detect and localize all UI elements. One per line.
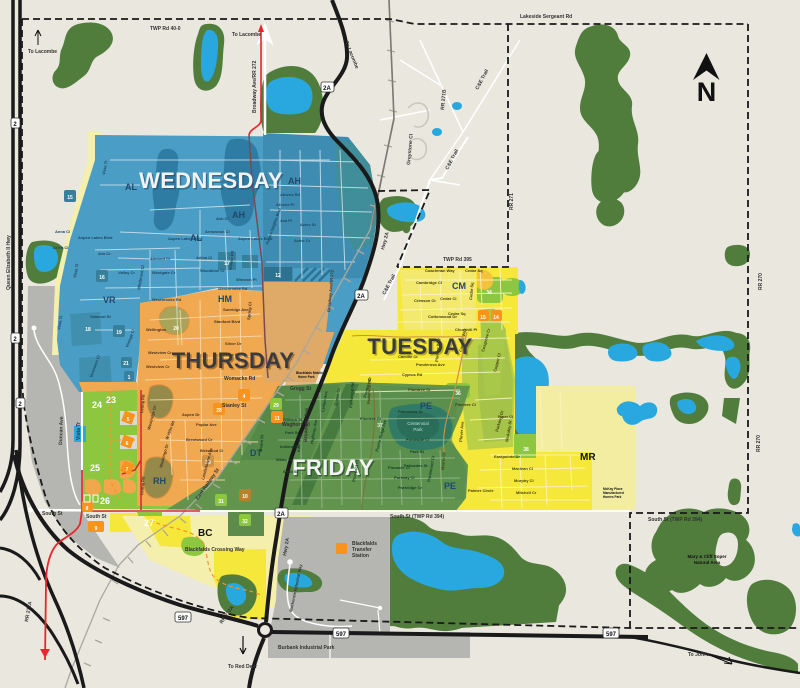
svg-text:Portway Cl: Portway Cl <box>394 475 415 480</box>
svg-text:Burbank Industrial Park: Burbank Industrial Park <box>278 645 335 651</box>
svg-text:Westview Cr: Westview Cr <box>146 364 170 369</box>
svg-text:20: 20 <box>173 326 179 332</box>
svg-text:Sunridge Ave: Sunridge Ave <box>223 307 249 312</box>
svg-text:7: 7 <box>126 467 129 473</box>
svg-text:South St: South St <box>86 514 107 520</box>
svg-text:N: N <box>697 77 717 107</box>
svg-text:Pinetree Cl: Pinetree Cl <box>360 416 381 421</box>
svg-text:Lakeside Sergeant Rd: Lakeside Sergeant Rd <box>520 14 572 20</box>
svg-text:RR 270: RR 270 <box>756 435 762 452</box>
svg-text:Athens Rd: Athens Rd <box>280 192 301 197</box>
svg-text:RR 271: RR 271 <box>509 193 515 210</box>
svg-text:Parkwood Rd: Parkwood Rd <box>366 378 372 404</box>
svg-text:2A: 2A <box>277 512 285 518</box>
svg-text:23: 23 <box>106 395 116 405</box>
svg-text:Pondside Cr: Pondside Cr <box>406 437 430 442</box>
svg-text:Ava Cr: Ava Cr <box>98 251 111 256</box>
svg-text:Westbrooke Rd: Westbrooke Rd <box>152 297 182 302</box>
svg-text:Westgate Cr: Westgate Cr <box>152 270 176 275</box>
svg-text:PE: PE <box>444 481 456 491</box>
svg-text:Ash Cl: Ash Cl <box>216 216 229 221</box>
svg-text:11: 11 <box>274 416 280 422</box>
svg-text:CM: CM <box>452 281 466 291</box>
svg-text:8: 8 <box>86 506 89 512</box>
svg-text:Shull St: Shull St <box>283 469 299 474</box>
svg-text:HM: HM <box>218 294 232 304</box>
svg-text:14: 14 <box>493 315 499 321</box>
svg-text:WEDNESDAY: WEDNESDAY <box>139 168 283 193</box>
svg-text:AH: AH <box>232 210 245 220</box>
svg-text:12: 12 <box>275 273 281 279</box>
svg-text:Ponderosa Ave: Ponderosa Ave <box>416 362 446 367</box>
svg-text:Cyprus Rd: Cyprus Rd <box>402 372 423 377</box>
svg-text:29: 29 <box>273 403 279 409</box>
svg-text:Woodbine Cl: Woodbine Cl <box>200 268 224 273</box>
svg-text:Poplar Ave: Poplar Ave <box>196 422 217 427</box>
svg-text:25: 25 <box>90 463 100 473</box>
svg-text:4: 4 <box>243 394 246 400</box>
svg-text:Valley Cr: Valley Cr <box>118 270 135 275</box>
svg-text:MR: MR <box>580 452 596 463</box>
svg-text:15: 15 <box>67 195 73 201</box>
svg-text:BC: BC <box>198 528 212 539</box>
svg-text:18: 18 <box>85 327 91 333</box>
svg-text:Stanley St: Stanley St <box>222 403 247 409</box>
svg-text:Eastpointe Dr: Eastpointe Dr <box>494 454 520 459</box>
svg-text:Natural Area: Natural Area <box>694 560 721 565</box>
svg-text:South St: South St <box>42 511 63 517</box>
svg-text:Willson St: Willson St <box>283 417 303 422</box>
svg-text:Pinnacle Cl: Pinnacle Cl <box>388 465 410 470</box>
svg-text:Aspen Dr: Aspen Dr <box>182 412 200 417</box>
svg-text:Camille Ct: Camille Ct <box>398 354 418 359</box>
svg-text:15: 15 <box>480 315 486 321</box>
svg-text:Aztec St: Aztec St <box>300 222 316 227</box>
svg-text:21: 21 <box>123 361 129 367</box>
svg-text:32: 32 <box>242 519 248 525</box>
svg-text:6: 6 <box>126 441 129 447</box>
svg-text:5: 5 <box>127 417 130 423</box>
svg-text:Panorama Dr: Panorama Dr <box>398 409 423 414</box>
svg-text:Duncan Ave: Duncan Ave <box>58 416 65 445</box>
svg-text:Stanford Blvd: Stanford Blvd <box>214 319 241 324</box>
svg-text:Winto St: Winto St <box>276 457 293 462</box>
svg-text:10: 10 <box>242 494 248 500</box>
svg-text:9: 9 <box>95 526 98 532</box>
svg-text:34: 34 <box>486 290 492 296</box>
svg-text:To Red Deer: To Red Deer <box>228 664 257 670</box>
svg-text:TUESDAY: TUESDAY <box>367 334 472 359</box>
svg-text:Coachman Way: Coachman Way <box>425 268 455 273</box>
svg-text:16: 16 <box>99 275 105 281</box>
svg-text:Aspen Lakes Blvd: Aspen Lakes Blvd <box>168 236 203 241</box>
svg-text:Park St: Park St <box>410 449 424 454</box>
svg-text:Station: Station <box>352 553 369 559</box>
svg-text:2A: 2A <box>323 86 331 92</box>
svg-text:31: 31 <box>218 499 224 505</box>
svg-text:Waghorn St: Waghorn St <box>282 422 310 428</box>
svg-text:To Joffre: To Joffre <box>688 652 709 658</box>
svg-text:27: 27 <box>144 518 154 528</box>
svg-text:36: 36 <box>455 391 461 397</box>
svg-text:Athens Pl: Athens Pl <box>276 202 294 207</box>
svg-text:Centennial: Centennial <box>407 421 429 426</box>
svg-text:Silver Dr: Silver Dr <box>225 341 242 346</box>
svg-text:South St (TWP Rd 394): South St (TWP Rd 394) <box>390 514 444 520</box>
svg-text:RR 270: RR 270 <box>758 273 764 290</box>
svg-text:26: 26 <box>100 496 110 506</box>
svg-text:Palmer Circle: Palmer Circle <box>468 488 494 493</box>
svg-text:Broadway Ave/RR 272: Broadway Ave/RR 272 <box>252 60 258 113</box>
svg-text:38: 38 <box>523 447 529 453</box>
svg-text:TWP Rd 395: TWP Rd 395 <box>443 257 472 263</box>
svg-text:Ava Pl: Ava Pl <box>280 218 292 223</box>
svg-text:Gregg St: Gregg St <box>290 386 311 392</box>
svg-text:Almond Cr: Almond Cr <box>150 256 171 261</box>
svg-text:Arnswood Cl: Arnswood Cl <box>205 229 230 234</box>
svg-text:1: 1 <box>128 375 131 381</box>
svg-text:Sunrise Cl: Sunrise Cl <box>219 352 239 357</box>
svg-text:Aztec Cr: Aztec Cr <box>294 238 311 243</box>
svg-text:597: 597 <box>178 616 189 622</box>
svg-text:Westview Cr: Westview Cr <box>148 350 172 355</box>
svg-text:Pinetree Cl: Pinetree Cl <box>455 402 476 407</box>
svg-text:Brentwood Cr: Brentwood Cr <box>186 437 213 442</box>
svg-text:Womacks Rd: Womacks Rd <box>224 376 255 382</box>
svg-text:Parkridge Cr: Parkridge Cr <box>398 485 422 490</box>
svg-text:597: 597 <box>606 632 617 638</box>
svg-text:Queen Elizabeth II Hwy: Queen Elizabeth II Hwy <box>6 235 12 290</box>
svg-text:Park St: Park St <box>285 430 299 435</box>
svg-text:VR: VR <box>103 295 116 305</box>
svg-text:Winston Pl: Winston Pl <box>236 277 257 282</box>
svg-text:AH: AH <box>288 176 301 186</box>
svg-text:Maclean Cl: Maclean Cl <box>512 466 533 471</box>
svg-text:RH: RH <box>153 476 166 486</box>
svg-text:Home Park: Home Park <box>298 375 315 379</box>
svg-text:To Lacombe: To Lacombe <box>232 32 261 38</box>
svg-text:Blackfalds Crossing Way: Blackfalds Crossing Way <box>185 547 245 553</box>
svg-text:Adina Cl: Adina Cl <box>196 255 212 260</box>
svg-text:Crimson Ct: Crimson Ct <box>414 298 436 303</box>
svg-text:Vista Tr: Vista Tr <box>76 422 82 440</box>
svg-text:Murphy Cl: Murphy Cl <box>514 478 534 483</box>
svg-text:Mary & Cliff Soper: Mary & Cliff Soper <box>687 554 726 559</box>
svg-text:24: 24 <box>92 400 102 410</box>
svg-text:FRIDAY: FRIDAY <box>292 455 374 480</box>
svg-text:Cedar Cl: Cedar Cl <box>440 296 456 301</box>
svg-text:Westbrooke Rd: Westbrooke Rd <box>218 286 248 291</box>
svg-text:To Lacombe: To Lacombe <box>28 49 57 55</box>
svg-text:Cedar Sq: Cedar Sq <box>448 311 466 316</box>
svg-text:Cedar Sq: Cedar Sq <box>465 268 483 273</box>
svg-text:Wellington: Wellington <box>146 327 167 332</box>
svg-text:Valmont St: Valmont St <box>90 314 111 319</box>
svg-text:Mitchell Cr: Mitchell Cr <box>516 490 537 495</box>
svg-text:597: 597 <box>336 632 347 638</box>
svg-text:South St (TWP Rd 394): South St (TWP Rd 394) <box>648 517 702 523</box>
svg-text:Homes Park: Homes Park <box>603 495 622 499</box>
svg-text:Anna Cl: Anna Cl <box>55 229 70 234</box>
svg-text:Aspen Lakes Blvd: Aspen Lakes Blvd <box>78 235 113 240</box>
svg-text:AL: AL <box>125 182 137 192</box>
svg-text:19: 19 <box>116 330 122 336</box>
svg-text:Plumtree Cr: Plumtree Cr <box>408 387 431 392</box>
svg-text:TWP Rd 40-0: TWP Rd 40-0 <box>150 26 181 32</box>
svg-text:Arlen Cl: Arlen Cl <box>53 245 68 250</box>
svg-text:Cambridge Cl: Cambridge Cl <box>416 280 442 285</box>
svg-text:Park: Park <box>413 427 423 432</box>
svg-text:2A: 2A <box>357 294 365 300</box>
